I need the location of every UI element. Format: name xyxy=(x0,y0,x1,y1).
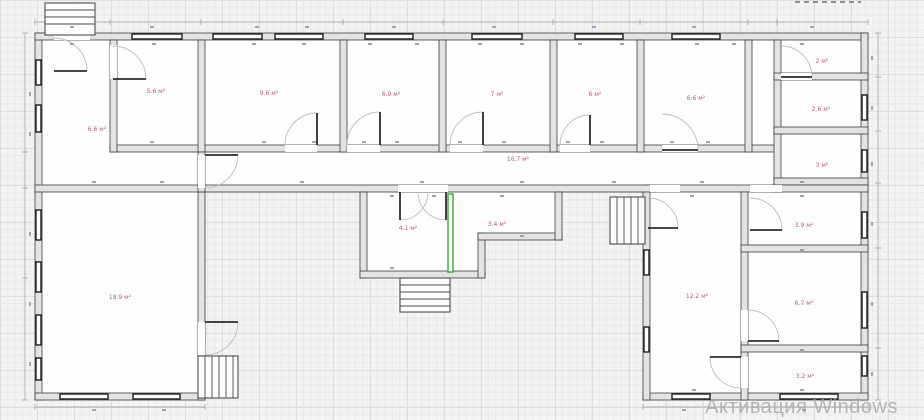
window[interactable] xyxy=(672,34,720,39)
window[interactable] xyxy=(36,262,41,292)
highlighted-wall[interactable] xyxy=(448,194,453,272)
wall-protrusion-right[interactable] xyxy=(555,192,562,240)
wall-right-column-h1[interactable] xyxy=(741,245,868,252)
wall-protrusion-left[interactable] xyxy=(360,192,367,278)
windows-activation-watermark: Активация Windows xyxy=(705,396,898,419)
room-area-label: 3 м² xyxy=(816,162,829,169)
floor-right-block xyxy=(643,185,868,400)
window[interactable] xyxy=(36,210,41,240)
wall-room4-room5[interactable] xyxy=(550,40,557,152)
room-area-label: 3.2 м² xyxy=(796,373,815,380)
window[interactable] xyxy=(36,60,41,85)
window[interactable] xyxy=(36,315,41,345)
wall-wing-div2[interactable] xyxy=(774,127,868,134)
door-gap xyxy=(560,145,590,152)
door-gap xyxy=(285,145,317,152)
room-area-label: 12.2 м² xyxy=(686,293,709,300)
room-area-label: 6.9 м² xyxy=(382,91,401,98)
room-area-label: 5.6 м² xyxy=(147,88,166,95)
window[interactable] xyxy=(36,358,41,380)
floor-left-tower xyxy=(35,185,205,400)
window[interactable] xyxy=(36,105,41,132)
window[interactable] xyxy=(472,34,522,39)
door-gap xyxy=(741,310,748,341)
room-area-label: 3.4 м² xyxy=(488,221,507,228)
window[interactable] xyxy=(862,212,867,238)
dimension-line-top xyxy=(35,19,868,25)
floor-top-band xyxy=(35,33,868,192)
room-area-label: 2 м² xyxy=(816,58,829,65)
floor-plan-canvas[interactable]: 6.6 м² 5.6 м² 9.6 м² 6.9 м² 7 м² 6 м² 6.… xyxy=(0,0,924,420)
door-gap xyxy=(650,185,680,192)
wall-room2-room3[interactable] xyxy=(340,40,347,152)
door-gap xyxy=(450,145,483,152)
wall-room3-room4[interactable] xyxy=(439,40,446,152)
door-gap xyxy=(347,145,380,152)
door-gap xyxy=(741,357,748,388)
window[interactable] xyxy=(275,34,323,39)
window[interactable] xyxy=(133,394,180,399)
wall-corridor-bottom[interactable] xyxy=(35,185,868,192)
room-area-label: 9.6 м² xyxy=(260,90,279,97)
dimension-line-right xyxy=(875,33,881,400)
door-gap xyxy=(198,322,205,355)
window[interactable] xyxy=(213,34,262,39)
room-area-label: 6.6 м² xyxy=(88,126,107,133)
window[interactable] xyxy=(862,292,867,328)
room-area-label: 6.6 м² xyxy=(687,95,706,102)
door-gap xyxy=(198,155,205,188)
stairs-mid-bottom[interactable] xyxy=(400,278,450,312)
room-area-label: 7 м² xyxy=(491,91,504,98)
door-gap xyxy=(662,145,698,152)
wall-room1-room2[interactable] xyxy=(198,40,205,152)
stairs-right-middle[interactable] xyxy=(610,197,645,244)
window[interactable] xyxy=(132,34,182,39)
window[interactable] xyxy=(644,250,649,275)
wall-right-column-h2[interactable] xyxy=(741,345,868,352)
room-area-label: 4.1 м² xyxy=(399,225,418,232)
wall-wing-div3[interactable] xyxy=(774,178,868,185)
wall-room5-room6[interactable] xyxy=(637,40,644,152)
room-area-label: 2.6 м² xyxy=(812,106,831,113)
room-area-label: 3.9 м² xyxy=(795,222,814,229)
floor-plan-grid-background[interactable]: 6.6 м² 5.6 м² 9.6 м² 6.9 м² 7 м² 6 м² 6.… xyxy=(0,0,924,420)
stairs-left-tower[interactable] xyxy=(198,356,238,398)
window[interactable] xyxy=(644,327,649,352)
wall-room6-right[interactable] xyxy=(745,40,752,152)
window[interactable] xyxy=(60,394,108,399)
wall-protrusion-bottom[interactable] xyxy=(360,271,485,278)
door-gap xyxy=(398,185,448,192)
room-area-label: 6.7 м² xyxy=(795,300,814,307)
door-gap xyxy=(110,45,117,79)
door-gap xyxy=(750,185,782,192)
window[interactable] xyxy=(862,150,867,172)
dimension-line-left xyxy=(22,33,28,400)
window[interactable] xyxy=(575,34,623,39)
window[interactable] xyxy=(862,95,867,120)
door[interactable] xyxy=(205,322,238,355)
room-area-label: 16.7 м² xyxy=(507,156,530,163)
window[interactable] xyxy=(862,356,867,376)
room-area-label: 6 м² xyxy=(589,91,602,98)
window[interactable] xyxy=(365,34,413,39)
wall-shaft-right[interactable] xyxy=(774,40,781,192)
room-area-label: 18.9 м² xyxy=(109,294,132,301)
stairs-top-left[interactable] xyxy=(45,3,95,35)
floor-mid-protrusion xyxy=(360,185,562,278)
